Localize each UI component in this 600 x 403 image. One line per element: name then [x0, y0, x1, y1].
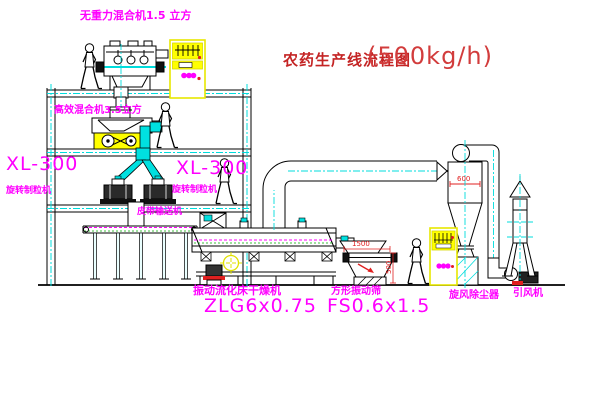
label-granulator-model-right: XL-300	[176, 159, 248, 178]
label-dryer-model: ZLG6x0.75	[204, 297, 317, 316]
granulator-right	[140, 176, 176, 204]
dimension-cyclone-diameter: 600	[457, 176, 470, 183]
label-sieve-model: FS0.6x1.5	[327, 297, 430, 316]
fluid-bed-dryer	[192, 213, 336, 285]
vibration-motor-symbol	[220, 252, 242, 274]
label-granulator-model-left: XL-300	[6, 155, 78, 174]
label-granulator-name-right: 旋转制粒机	[172, 186, 217, 195]
dimension-sieve-width: 1500	[352, 241, 370, 248]
label-fan-name: 引风机	[513, 289, 543, 299]
label-high-eff-mixer: 高效混合机3.5立方	[54, 106, 142, 116]
exhaust-stack	[502, 174, 538, 280]
granulator-left	[100, 176, 136, 204]
label-gravity-mixer: 无重力混合机1.5 立方	[80, 10, 191, 21]
belt-conveyor-machine	[83, 226, 197, 279]
label-belt-conveyor: 皮带输送机	[137, 208, 182, 217]
control-cabinet-top	[170, 40, 205, 98]
control-cabinet-right	[430, 228, 457, 285]
person-figure-4	[408, 239, 429, 284]
gravity-free-mixer	[96, 41, 168, 115]
label-cyclone-name: 旋风除尘器	[449, 291, 499, 301]
page-title-capacity: (500kg/h)	[367, 44, 493, 68]
dimension-sieve-height: 500	[386, 261, 393, 274]
process-flow-diagram: 无重力混合机1.5 立方 农药生产线流程图 (500kg/h) 高效混合机3.5…	[0, 0, 600, 403]
exhaust-duct	[263, 161, 457, 230]
label-granulator-name-left: 旋转制粒机	[6, 187, 51, 196]
